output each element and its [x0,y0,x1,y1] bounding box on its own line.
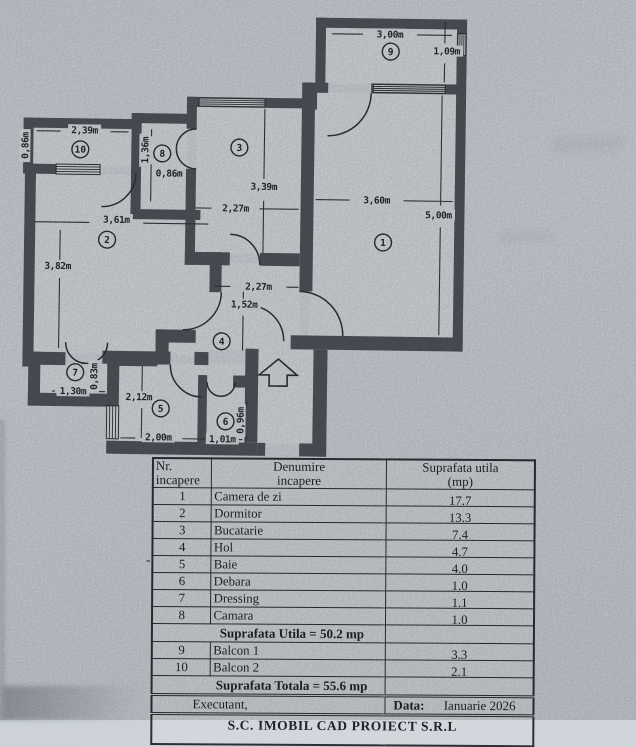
dimension-label-group: 1,52m [228,298,261,310]
room-area-value: 13.3 [449,510,471,525]
room-number-marker: 2 [99,231,116,248]
room-area-value: 2.1 [451,664,467,679]
room-area-value: 17.7 [449,493,471,508]
dimension-label: 2,39m [71,125,98,136]
room-number-text: 5 [158,404,164,415]
room-area-cell: 7.4 [386,523,535,541]
dimension-label-group: 5,00m [422,209,455,221]
wall-segment [194,352,208,365]
room-number-text: 10 [75,145,87,156]
wall-segment [185,252,230,266]
summary-empty-cell [385,625,534,644]
dimension-label: 2,27m [245,282,272,293]
dimension-label: 3,82m [44,261,71,272]
room-name-cell: Camara [211,607,386,625]
room-number-cell: 5 [152,556,211,573]
room-number-text: 4 [219,337,225,348]
dimension-label-group: 2,39m [68,124,101,136]
scan-bleed-mark [498,231,554,243]
scan-shadow-left-edge [0,420,7,720]
wall-segment [299,443,326,456]
executant-row: Executant, Data: Ianuarie 2026 [151,695,533,716]
dimension-label-group: 3,82m [41,260,74,272]
room-area-cell: 3.3 [385,643,534,661]
dimension-label: 1,01m [209,434,236,445]
room-number-cell: 6 [152,573,211,590]
wall-segment [316,18,466,30]
room-number-marker: 3 [231,139,248,156]
scan-bleed-mark [552,135,625,154]
room-number-text: 2 [104,235,110,246]
company-row: S.C. IMOBIL CAD PROIECT S.R.L [151,714,533,747]
dimension-label-group: 2,27m [219,202,252,214]
dimension-label-group: 2,27m [242,281,275,293]
dimension-label-group: 1,01m [206,433,239,445]
room-number-cell: 9 [152,642,211,659]
room-number-cell: 2 [153,505,212,522]
dimension-label: 1,52m [231,299,258,310]
room-name-cell: Dressing [211,590,386,608]
header-sup-line2: (mp) [389,474,532,489]
dimension-label-group: 2,12m [122,391,155,403]
room-number-marker: 5 [152,400,169,417]
areas-table: Nr. incapere Denumire incapere Suprafata… [150,457,536,747]
header-nr: Nr. incapere [153,458,212,488]
dimension-label-group: 1,36m [139,134,151,167]
summary-empty-cell [385,677,534,697]
dimension-label: 2,27m [222,203,249,214]
dimension-label: 0,86m [20,131,31,158]
wall-segment [312,350,327,457]
executant-cell: Executant, [151,695,385,715]
room-number-cell: 7 [152,590,211,607]
window-hatch-line [56,169,100,170]
room-name-cell: Hol [211,539,386,557]
room-floor [257,349,314,445]
room-area-cell: 1.0 [386,574,535,592]
room-name-cell: Balcon 1 [211,642,386,660]
summary-text: Suprafata Totala = 55.6 mp [155,677,383,694]
room-number-cell: 1 [153,488,212,505]
room-number-marker: 7 [67,364,84,381]
header-den-line2: incapere [214,473,384,488]
room-area-cell: 17.7 [386,489,535,507]
room-area-cell: 4.0 [386,557,535,575]
rooms-tbody: 1Camera de zi17.72Dormitor13.33Bucatarie… [152,488,535,697]
room-area-cell: 4.7 [386,540,535,558]
dimension-label-group: 3,00m [373,28,406,40]
dimension-line [34,222,89,223]
dimension-label: 2,00m [145,432,172,443]
room-area-value: 1.1 [452,595,468,610]
room-number-marker: 10 [72,141,89,158]
room-area-cell: 1.0 [385,608,534,626]
wall-segment [315,18,326,93]
dimension-label-group: 0,83m [88,360,100,393]
dimension-label-group: 0,86m [19,129,31,162]
dimension-label-group: 0,86m [152,167,185,179]
dimension-label: 0,86m [156,168,183,179]
dimension-label: 5,00m [425,210,452,221]
wall-segment [102,351,170,365]
room-area-cell: 2.1 [385,660,534,678]
room-area-cell: 1.1 [386,591,535,609]
summary-text: Suprafata Utila = 50.2 mp [155,625,383,642]
scanned-floorplan-page: { "plan": { "rooms": [ {"n":"1","x":386,… [0,0,636,720]
room-number-marker: 8 [154,145,171,162]
wall-segment [260,253,300,267]
dimension-label-group: 0,96m [234,404,246,437]
room-areas-table: Nr. incapere Denumire incapere Suprafata… [150,457,536,747]
room-number-marker: 1 [375,234,392,251]
scan-shadow-bottom-left [0,686,152,720]
header-suprafata: Suprafata utila (mp) [386,459,535,489]
window-hatch-line [56,171,100,172]
room-area-cell: 13.3 [386,506,535,524]
room-area-value: 1.0 [451,612,467,627]
dimension-label: 1,36m [140,136,151,163]
room-number-text: 3 [236,143,242,154]
room-number-marker: 6 [217,413,234,430]
room-number-cell: 8 [152,607,211,624]
date-label: Data: [393,698,424,713]
company-name: S.C. IMOBIL CAD PROIECT S.R.L [151,714,533,747]
room-name-cell: Bucatarie [211,522,386,540]
dimension-label: 1,30m [60,386,87,397]
room-number-text: 9 [388,47,394,58]
room-number-marker: 9 [382,43,399,60]
dimension-label-group: 1,30m [56,385,89,397]
dimension-label: 3,00m [377,29,404,40]
room-number-text: 7 [72,368,78,379]
room-number-marker: 4 [213,333,230,350]
header-nr-line2: incapere [156,473,210,487]
room-name-cell: Balcon 2 [211,659,386,677]
dimension-line [404,201,453,202]
room-name-cell: Dormitor [212,505,387,523]
wall-segment [187,97,197,129]
dimension-label-group: 3,61m [100,214,133,226]
table-header-row: Nr. incapere Denumire incapere Suprafata… [153,458,535,490]
dimension-label: 0,96m [235,407,246,434]
wall-segment [291,335,463,351]
dimension-label: 3,39m [250,182,277,193]
room-name-cell: Debara [211,573,386,591]
room-area-value: 4.0 [452,561,468,576]
dimension-label: 3,60m [363,195,390,206]
scan-artifact-dash: - [146,552,150,568]
room-number-text: 6 [223,417,229,428]
date-cell: Data: Ianuarie 2026 [385,696,534,716]
room-name-cell: Baie [211,556,386,574]
room-area-value: 7.4 [452,527,468,542]
room-number-cell: 10 [152,659,211,676]
room-number-cell: 3 [153,522,212,539]
dimension-label-group: 3,60m [360,194,393,206]
wall-segment [257,443,265,456]
header-denumire: Denumire incapere [212,458,387,489]
dimension-label-group: 1,09m [430,45,463,57]
dimension-label: 0,83m [89,362,100,389]
dimension-label: 2,12m [125,392,152,403]
dimension-label: 1,09m [433,46,460,57]
dimension-label-group: 2,00m [142,431,175,443]
window-hatch-line [56,166,100,167]
summary-cell: Suprafata Totala = 55.6 mp [152,676,386,696]
room-area-value: 4.7 [452,544,468,559]
summary-row: Suprafata Utila = 50.2 mp [152,624,534,644]
summary-row: Suprafata Totala = 55.6 mp [152,676,534,697]
room-name-cell: Camera de zi [212,488,387,506]
wall-segment [185,169,196,265]
room-area-value: 1.0 [452,578,468,593]
room-number-text: 1 [380,238,386,249]
room-area-value: 3.3 [451,647,467,662]
room-number-text: 8 [159,149,165,160]
room-number-cell: 4 [152,539,211,556]
dimension-line [151,164,152,201]
date-value: Ianuarie 2026 [444,698,516,713]
dimension-label-group: 3,39m [247,181,280,193]
wall-segment [197,375,207,442]
summary-cell: Suprafata Utila = 50.2 mp [152,624,386,643]
dimension-line [260,209,299,210]
wall-segment [299,98,315,291]
dimension-label: 3,61m [103,215,130,226]
